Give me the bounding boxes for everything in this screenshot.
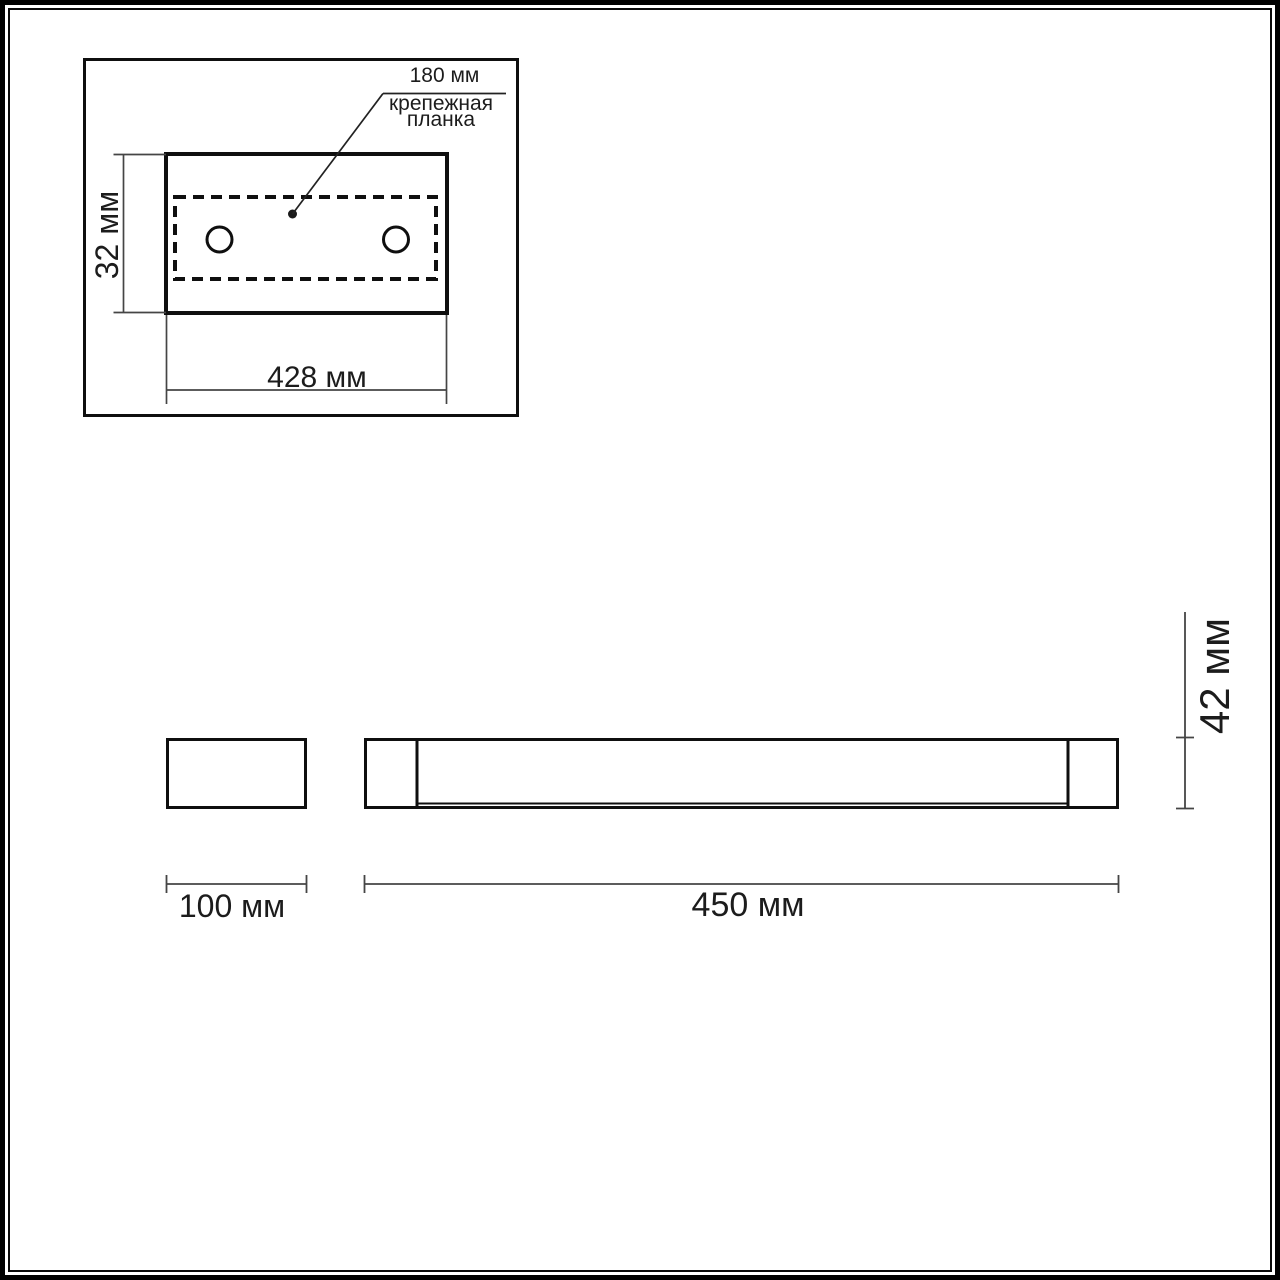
dimension-drawing-page: 180 мм крепежная планка 32 мм 428 мм 100…: [0, 0, 1280, 1280]
side-view-body: [366, 740, 1118, 808]
dim-label-42mm: 42 мм: [1191, 586, 1239, 766]
callout-label-line2: планка: [407, 108, 475, 131]
diagram-linework: [0, 0, 1280, 1280]
dim-label-100mm: 100 мм: [152, 889, 312, 924]
dim-label-428mm: 428 мм: [232, 361, 402, 394]
side-view-end-block: [168, 740, 306, 808]
dim-label-32mm: 32 мм: [90, 165, 126, 305]
mounting-hole-left: [207, 227, 232, 252]
dim-label-450mm: 450 мм: [658, 887, 838, 924]
mounting-hole-right: [384, 227, 409, 252]
callout-value-180mm: 180 мм: [383, 64, 506, 87]
callout-label-mounting-bracket: крепежная планка: [366, 96, 516, 128]
mounting-bracket-dashed-outline: [175, 197, 436, 279]
